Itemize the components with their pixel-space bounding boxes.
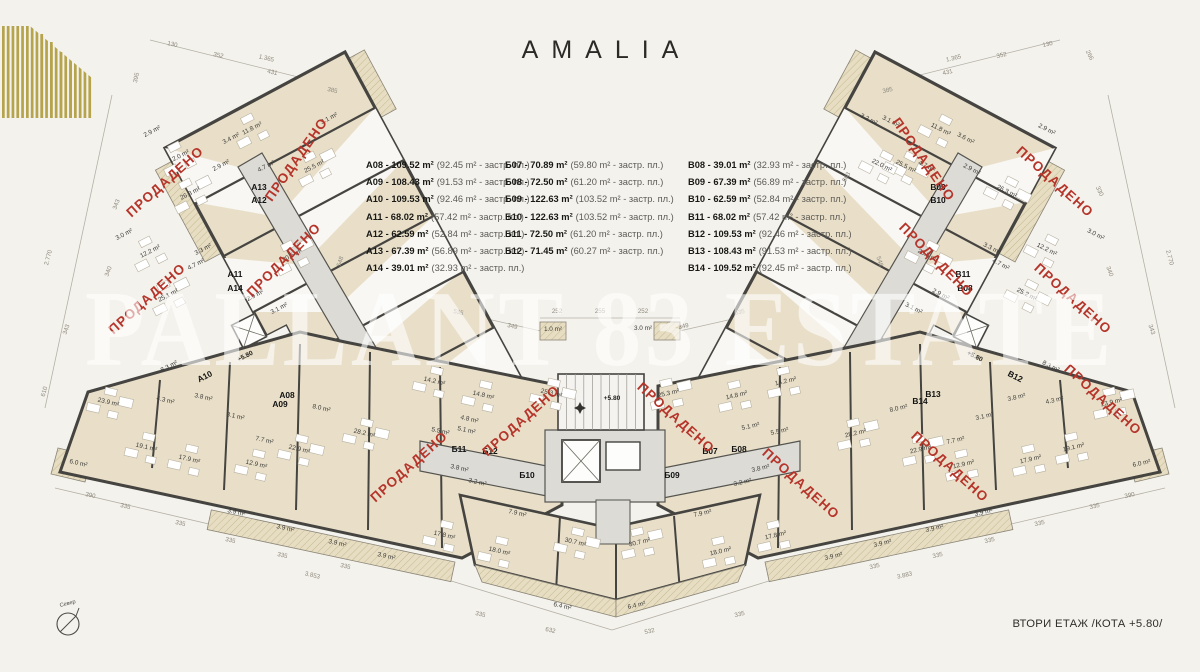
unit-label: B13 [925, 389, 941, 399]
legend-entry-B13: B13 - 108.43 m²(91.53 m² - застр. пл.) [688, 243, 852, 260]
legend-unit-total: Б08 - 72.50 m² [505, 177, 568, 187]
apartment-legend: A08 - 109.52 m²(92.45 m² - застр. пл.)A0… [0, 157, 1200, 287]
legend-built-area: (92.46 m² - застр. пл.) [759, 229, 852, 239]
logo: AMALIA [0, 26, 1200, 65]
legend-entry-Б07: Б07 - 70.89 m²(59.80 m² - застр. пл.) [505, 157, 674, 174]
legend-built-area: (56.89 m² - застр. пл.) [754, 177, 847, 187]
dimension-label: 335 [1089, 502, 1101, 511]
legend-entry-Б09: Б09 - 122.63 m²(103.52 m² - застр. пл.) [505, 191, 674, 208]
legend-entry-Б10: Б10 - 122.63 m²(103.52 m² - застр. пл.) [505, 209, 674, 226]
dimension-label: 335 [175, 519, 187, 528]
dimension-label: 335 [984, 536, 996, 545]
amalia-logo-mark [0, 26, 92, 118]
dimension-label: 390 [85, 491, 97, 500]
compass-label: Север [59, 599, 76, 609]
dimension-label: 343 [1147, 324, 1157, 337]
unit-label: Б11 [452, 444, 467, 454]
legend-built-area: (91.53 m² - застр. пл.) [759, 246, 852, 256]
legend-entry-B14: B14 - 109.52 m²(92.45 m² - застр. пл.) [688, 260, 852, 277]
legend-entry-B11: B11 - 68.02 m²(57.42 m² - застр. пл.) [688, 209, 852, 226]
dimension-label: 632 [545, 626, 557, 635]
dimension-label: 335 [475, 610, 487, 619]
watermark: PALLANT 83 ESTATE [85, 270, 1115, 389]
legend-entry-B08: B08 - 39.01 m²(32.93 m² - застр. пл.) [688, 157, 852, 174]
legend-column-v: B08 - 39.01 m²(32.93 m² - застр. пл.)B09… [688, 157, 852, 277]
legend-built-area: (59.80 m² - застр. пл.) [571, 160, 664, 170]
legend-unit-total: A14 - 39.01 m² [366, 263, 429, 273]
dimension-label: 431 [942, 68, 954, 77]
legend-entry-B09: B09 - 67.39 m²(56.89 m² - застр. пл.) [688, 174, 852, 191]
legend-unit-total: A12 - 62.59 m² [366, 229, 429, 239]
floor-plan-sheet: 2.9 m²12.0 m²3.4 m²11.8 m²3.1 m²4.7 m²2.… [0, 0, 1200, 672]
legend-built-area: (60.27 m² - застр. пл.) [571, 246, 664, 256]
dimension-label: 335 [932, 551, 944, 560]
legend-entry-B12: B12 - 109.53 m²(92.46 m² - застр. пл.) [688, 226, 852, 243]
legend-built-area: (92.45 m² - застр. пл.) [759, 263, 852, 273]
legend-unit-total: B13 - 108.43 m² [688, 246, 756, 256]
legend-unit-total: A13 - 67.39 m² [366, 246, 429, 256]
legend-unit-total: B12 - 109.53 m² [688, 229, 756, 239]
legend-entry-Б12: Б12 - 71.45 m²(60.27 m² - застр. пл.) [505, 243, 674, 260]
dimension-label: 335 [225, 536, 237, 545]
legend-unit-total: A09 - 108.43 m² [366, 177, 434, 187]
legend-unit-total: B10 - 62.59 m² [688, 194, 751, 204]
legend-unit-total: Б12 - 71.45 m² [505, 246, 568, 256]
dimension-label: 335 [277, 551, 289, 560]
legend-entry-A14: A14 - 39.01 m²(32.93 m² - застр. пл.) [366, 260, 530, 277]
legend-built-area: (32.93 m² - застр. пл.) [754, 160, 847, 170]
dimension-label: 335 [869, 562, 881, 571]
unit-label: Б09 [664, 470, 680, 480]
dimension-label: 395 [132, 71, 141, 83]
legend-unit-total: Б10 - 122.63 m² [505, 212, 573, 222]
dimension-label: 335 [340, 562, 352, 571]
logo-wordmark: AMALIA [0, 36, 1200, 65]
level-label: +5.80 [604, 395, 621, 402]
floor-plan-drawing: 2.9 m²12.0 m²3.4 m²11.8 m²3.1 m²4.7 m²2.… [0, 0, 1200, 672]
legend-built-area: (103.52 m² - застр. пл.) [576, 194, 674, 204]
legend-unit-total: B11 - 68.02 m² [688, 212, 750, 222]
dimension-label: 3.883 [896, 570, 913, 580]
legend-built-area: (57.42 m² - застр. пл.) [753, 212, 846, 222]
room-area-label: 2.9 m² [1037, 122, 1056, 136]
dimension-label: 3.853 [304, 570, 321, 580]
dimension-label: 335 [1034, 519, 1046, 528]
unit-label: Б10 [519, 470, 535, 480]
dimension-label: 390 [1124, 491, 1136, 500]
floor-title: ВТОРИ ЕТАЖ /КОТА +5.80/ [1005, 618, 1170, 630]
legend-unit-total: B08 - 39.01 m² [688, 160, 751, 170]
legend-unit-total: Б09 - 122.63 m² [505, 194, 573, 204]
dimension-label: 335 [734, 610, 746, 619]
dimension-label: 335 [120, 502, 132, 511]
legend-column-b: Б07 - 70.89 m²(59.80 m² - застр. пл.)Б08… [505, 157, 674, 260]
unit-label: Б08 [731, 444, 747, 454]
legend-built-area: (32.93 m² - застр. пл.) [432, 263, 525, 273]
legend-built-area: (61.20 m² - застр. пл.) [571, 177, 664, 187]
dimension-label: 431 [267, 68, 279, 77]
dimension-label: 532 [644, 627, 656, 636]
legend-entry-Б08: Б08 - 72.50 m²(61.20 m² - застр. пл.) [505, 174, 674, 191]
legend-entry-Б11: Б11 - 72.50 m²(61.20 m² - застр. пл.) [505, 226, 674, 243]
legend-unit-total: Б07 - 70.89 m² [505, 160, 568, 170]
legend-unit-total: A11 - 68.02 m² [366, 212, 428, 222]
legend-built-area: (61.20 m² - застр. пл.) [570, 229, 663, 239]
unit-label: A09 [272, 399, 288, 409]
legend-unit-total: B09 - 67.39 m² [688, 177, 751, 187]
legend-built-area: (103.52 m² - застр. пл.) [576, 212, 674, 222]
legend-entry-B10: B10 - 62.59 m²(52.84 m² - застр. пл.) [688, 191, 852, 208]
legend-unit-total: A10 - 109.53 m² [366, 194, 434, 204]
legend-unit-total: B14 - 109.52 m² [688, 263, 756, 273]
legend-unit-total: Б11 - 72.50 m² [505, 229, 567, 239]
north-compass-icon: Север [46, 592, 94, 656]
room-area-label: 2.9 m² [143, 124, 162, 138]
legend-unit-total: A08 - 109.52 m² [366, 160, 434, 170]
legend-built-area: (52.84 m² - застр. пл.) [754, 194, 847, 204]
